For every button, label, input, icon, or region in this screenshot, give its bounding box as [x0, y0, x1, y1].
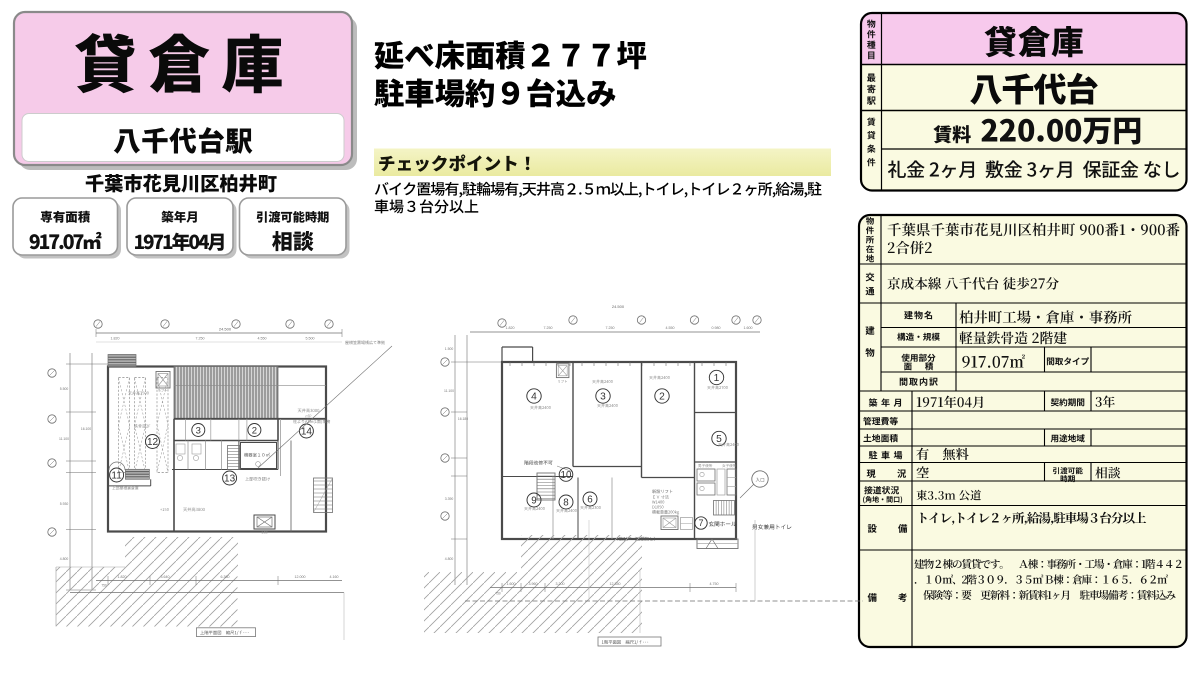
- svg-text:24.500: 24.500: [612, 304, 625, 309]
- svg-text:7.250: 7.250: [606, 326, 615, 330]
- svg-text:1.50: 1.50: [261, 531, 267, 535]
- svg-text:6.380: 6.380: [221, 575, 230, 579]
- svg-text:11: 11: [111, 471, 122, 482]
- svg-text:2: 2: [252, 425, 257, 436]
- svg-text:1.600: 1.600: [507, 582, 516, 586]
- svg-text:750: 750: [495, 592, 501, 596]
- svg-text:リフト: リフト: [157, 388, 168, 393]
- svg-text:3: 3: [196, 425, 201, 436]
- svg-text:5: 5: [716, 434, 722, 445]
- svg-text:12.350: 12.350: [610, 582, 621, 586]
- svg-text:6: 6: [587, 495, 593, 506]
- svg-text:4.800: 4.800: [445, 557, 454, 561]
- svg-text:1.820: 1.820: [111, 337, 120, 341]
- svg-text:3.960: 3.960: [529, 582, 538, 586]
- svg-text:12.000: 12.000: [295, 575, 306, 579]
- svg-text:1: 1: [714, 373, 720, 384]
- svg-text:4.550: 4.550: [258, 337, 267, 341]
- svg-text:4.750: 4.750: [710, 582, 719, 586]
- svg-text:5.500: 5.500: [306, 337, 315, 341]
- svg-text:7.250: 7.250: [196, 337, 205, 341]
- svg-text:1.500: 1.500: [445, 347, 454, 351]
- svg-text:1.820: 1.820: [118, 575, 127, 579]
- svg-text:4: 4: [531, 392, 537, 403]
- svg-text:7: 7: [698, 518, 703, 528]
- svg-text:8: 8: [563, 498, 569, 509]
- svg-text:3: 3: [600, 392, 606, 403]
- svg-text:4.800: 4.800: [60, 557, 69, 561]
- svg-text:7.250: 7.250: [544, 326, 553, 330]
- svg-text:3.200: 3.200: [556, 582, 565, 586]
- svg-text:3.640: 3.640: [161, 575, 170, 579]
- svg-text:4.160: 4.160: [330, 575, 339, 579]
- svg-text:13: 13: [224, 474, 236, 485]
- svg-text:11.100: 11.100: [59, 437, 69, 441]
- svg-text:3.390: 3.390: [445, 497, 454, 501]
- svg-text:16.100: 16.100: [81, 427, 91, 431]
- svg-text:12: 12: [147, 437, 159, 448]
- svg-text:14: 14: [301, 427, 313, 438]
- svg-text:リフト: リフト: [557, 379, 567, 384]
- svg-text:11.100: 11.100: [444, 389, 454, 393]
- svg-text:5.930: 5.930: [60, 502, 69, 506]
- svg-text:16.180: 16.180: [458, 417, 468, 421]
- svg-text:9: 9: [531, 496, 536, 507]
- svg-text:1.600: 1.600: [744, 326, 753, 330]
- svg-text:2: 2: [659, 392, 665, 403]
- svg-text:10: 10: [561, 470, 572, 481]
- svg-text:0.980: 0.980: [712, 326, 721, 330]
- svg-text:5.500: 5.500: [60, 387, 69, 391]
- svg-text:750: 750: [101, 584, 107, 588]
- svg-text:1.820: 1.820: [506, 326, 515, 330]
- svg-text:4.550: 4.550: [666, 326, 675, 330]
- svg-text:24.500: 24.500: [219, 327, 232, 332]
